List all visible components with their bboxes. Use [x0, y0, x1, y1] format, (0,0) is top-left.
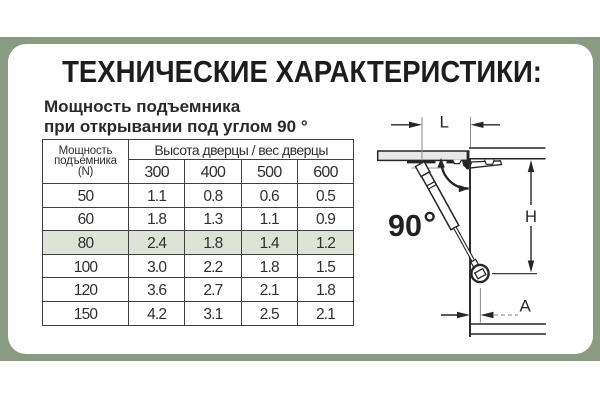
svg-text:L: L	[440, 113, 449, 132]
svg-text:H: H	[525, 208, 537, 226]
svg-text:A: A	[520, 297, 532, 316]
svg-text:90: 90	[388, 209, 422, 243]
